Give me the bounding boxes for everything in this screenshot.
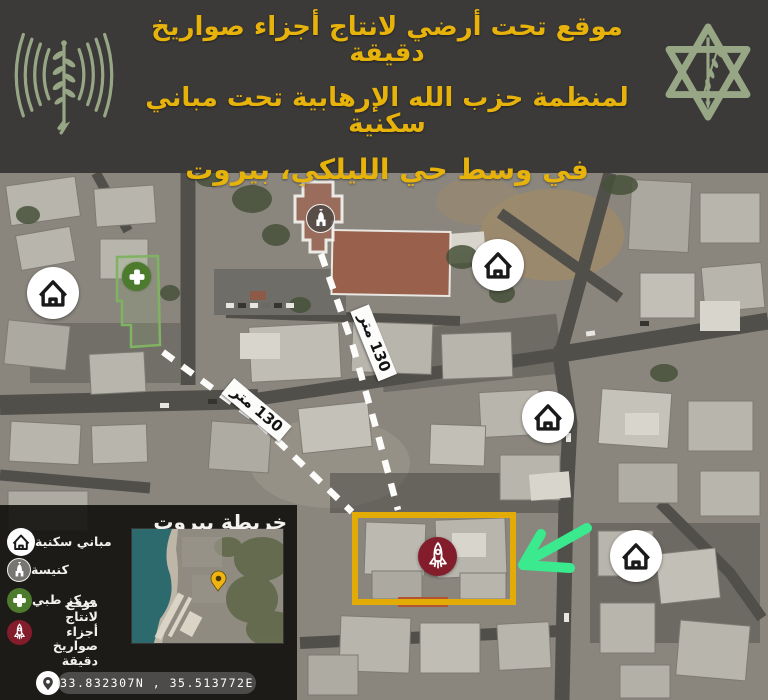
rocket-icon — [422, 541, 454, 573]
medical-cross-icon — [7, 588, 32, 613]
title-line-2: لمنظمة حزب الله الإرهابية تحت مباني سكني… — [110, 85, 664, 137]
rocket-site-marker — [418, 537, 457, 576]
legend-label: كنيسة — [31, 563, 69, 577]
house-marker — [610, 530, 662, 582]
pointer-arrow-icon — [500, 513, 595, 581]
idf-logo — [656, 16, 760, 128]
beirut-overview-map — [132, 529, 283, 643]
house-marker — [522, 391, 574, 443]
house-icon — [619, 539, 653, 573]
legend-item-rocket-site: موقع لانتاج أجزاء صواريخ دقيقة — [0, 611, 126, 653]
signals-antenna-icon — [12, 20, 116, 138]
title-line-3: في وسط حي الليلكي، بيروت — [110, 156, 664, 184]
header-title-block: موقع تحت أرضي لانتاج أجزاء صواريخ دقيقة … — [110, 14, 664, 184]
medical-cross-icon — [127, 267, 147, 287]
header-banner: موقع تحت أرضي لانتاج أجزاء صواريخ دقيقة … — [0, 0, 768, 173]
title-line-1: موقع تحت أرضي لانتاج أجزاء صواريخ دقيقة — [110, 14, 664, 66]
house-marker — [27, 267, 79, 319]
location-pin-icon — [36, 671, 60, 695]
church-icon — [7, 558, 31, 582]
legend-panel: خريطة بيروت — [0, 505, 297, 700]
house-icon — [531, 400, 565, 434]
house-icon — [36, 276, 70, 310]
coordinates-badge: 33.832307N , 35.513772E — [58, 672, 256, 694]
infographic: موقع تحت أرضي لانتاج أجزاء صواريخ دقيقة … — [0, 0, 768, 700]
legend-label: موقع لانتاج أجزاء صواريخ دقيقة — [32, 596, 98, 668]
rocket-icon — [7, 620, 32, 645]
church-icon — [311, 209, 331, 229]
house-icon — [481, 248, 515, 282]
legend-item-residential: مباني سكنية — [0, 527, 126, 557]
legend-item-church: كنيسة — [0, 557, 126, 583]
legend-label: مباني سكنية — [35, 535, 112, 549]
medical-marker — [122, 262, 151, 291]
church-marker — [306, 204, 335, 233]
house-marker — [472, 239, 524, 291]
house-icon — [7, 528, 35, 556]
satellite-map: 130 متر 130 متر — [0, 173, 768, 700]
